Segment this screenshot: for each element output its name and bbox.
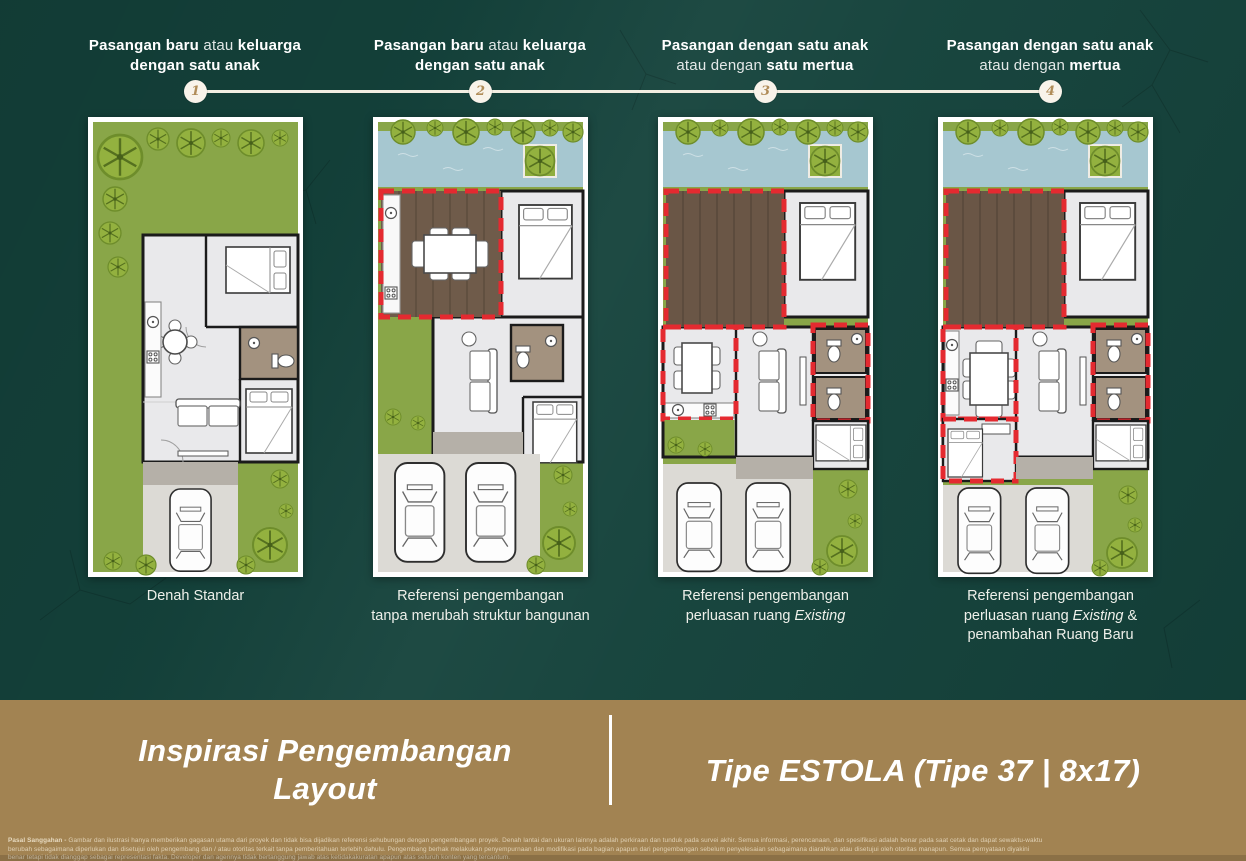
shrub-icon xyxy=(411,416,425,430)
car-icon xyxy=(746,483,790,571)
deck-expansion-area xyxy=(946,191,1064,327)
footer-left-title-line2: Layout xyxy=(40,770,610,808)
bed-icon xyxy=(246,389,292,453)
bed-icon xyxy=(816,425,866,461)
tree-icon xyxy=(279,504,293,518)
tree-icon xyxy=(1119,486,1137,504)
shrub-icon xyxy=(104,552,122,570)
shrub-icon xyxy=(698,442,712,456)
sink-icon xyxy=(947,340,958,351)
step-timeline xyxy=(195,90,1051,93)
tree-icon xyxy=(212,129,230,147)
planter-icon xyxy=(524,145,556,177)
floor-plan-2 xyxy=(373,117,588,577)
tree-icon xyxy=(563,122,583,142)
tree-icon xyxy=(848,514,862,528)
plan-2-caption: Referensi pengembangantanpa merubah stru… xyxy=(348,587,613,626)
stove-icon xyxy=(946,379,958,391)
tv-console xyxy=(1080,357,1086,405)
tree-icon xyxy=(827,120,843,136)
tree-icon xyxy=(98,135,142,179)
shrub-icon xyxy=(385,409,401,425)
tree-icon xyxy=(238,130,264,156)
tree-icon xyxy=(772,119,788,135)
tree-icon xyxy=(992,120,1008,136)
sink-icon xyxy=(546,336,557,347)
step-4-badge: 4 xyxy=(1039,80,1062,103)
floor-plan-1 xyxy=(88,117,303,577)
tree-icon xyxy=(542,120,558,136)
side-table xyxy=(1033,332,1047,346)
tv-console xyxy=(178,451,228,456)
toilet-icon xyxy=(827,340,841,362)
desk xyxy=(982,424,1010,434)
plan-4-caption: Referensi pengembanganperluasan ruang Ex… xyxy=(918,587,1183,646)
toilet-icon xyxy=(1107,340,1121,362)
bed-icon xyxy=(226,247,290,293)
porch xyxy=(736,457,813,479)
car-icon xyxy=(170,489,211,571)
step-2-title: Pasangan baru atau keluargadengan satu a… xyxy=(350,36,610,76)
footer-right-title: Tipe ESTOLA (Tipe 37 | 8x17) xyxy=(650,753,1196,789)
tree-icon xyxy=(956,120,980,144)
tree-icon xyxy=(1052,119,1068,135)
planter-icon xyxy=(809,145,841,177)
tree-icon xyxy=(1076,120,1100,144)
tree-icon xyxy=(1018,119,1044,145)
step-3-number: 3 xyxy=(761,84,770,99)
stove-icon xyxy=(704,404,716,416)
tree-icon xyxy=(103,187,127,211)
step-2-number: 2 xyxy=(476,84,485,99)
tree-icon xyxy=(527,556,545,574)
toilet-icon xyxy=(1107,388,1121,410)
step-4-title: Pasangan dengan satu anakatau dengan mer… xyxy=(920,36,1180,76)
tree-icon xyxy=(827,536,857,566)
tree-icon xyxy=(712,120,728,136)
footer-left-title-line1: Inspirasi Pengembangan xyxy=(40,732,610,770)
bathroom xyxy=(815,377,866,419)
dining-table-icon xyxy=(412,228,488,280)
sink-icon xyxy=(386,208,397,219)
tree-icon xyxy=(796,120,820,144)
car-icon xyxy=(395,463,444,562)
tree-icon xyxy=(1092,560,1108,576)
stove-icon xyxy=(147,351,159,363)
sink-icon xyxy=(249,338,260,349)
tv-console xyxy=(800,357,806,405)
plan-1-caption: Denah Standar xyxy=(63,587,328,607)
car-icon xyxy=(677,483,721,571)
bed-icon xyxy=(1096,425,1146,461)
tree-icon xyxy=(543,527,575,559)
tree-icon xyxy=(391,120,415,144)
tree-icon xyxy=(271,470,289,488)
bed-icon xyxy=(1080,203,1135,280)
step-1-badge: 1 xyxy=(184,80,207,103)
new-room xyxy=(943,419,1016,481)
toilet-icon xyxy=(272,354,294,368)
step-4-number: 4 xyxy=(1046,84,1055,99)
footer-left-title: Inspirasi Pengembangan Layout xyxy=(40,732,610,808)
side-table xyxy=(753,332,767,346)
tree-icon xyxy=(1107,120,1123,136)
tree-icon xyxy=(177,129,205,157)
tree-icon xyxy=(147,128,169,150)
tree-icon xyxy=(427,120,443,136)
tree-icon xyxy=(1128,122,1148,142)
tree-icon xyxy=(511,120,535,144)
tree-icon xyxy=(272,130,288,146)
toilet-icon xyxy=(516,346,530,368)
tree-icon xyxy=(554,466,572,484)
sink-icon xyxy=(148,317,159,328)
car-icon xyxy=(466,463,515,562)
tree-icon xyxy=(738,119,764,145)
sink-icon xyxy=(673,405,684,416)
bottom-edge-shade xyxy=(0,855,1246,861)
bathroom xyxy=(511,325,563,381)
tree-icon xyxy=(812,559,828,575)
tree-icon xyxy=(676,120,700,144)
bed-icon xyxy=(800,203,855,280)
bed-icon xyxy=(533,402,577,463)
step-1-title: Pasangan baru atau keluargadengan satu a… xyxy=(65,36,325,76)
bathroom xyxy=(1095,377,1146,419)
step-3-title: Pasangan dengan satu anakatau dengan sat… xyxy=(635,36,895,76)
toilet-icon xyxy=(827,388,841,410)
porch xyxy=(433,432,523,454)
stove-icon xyxy=(385,287,397,299)
sink-icon xyxy=(1132,334,1143,345)
deck-expansion-area xyxy=(666,191,784,327)
divider xyxy=(609,715,612,805)
tree-icon xyxy=(1107,538,1137,568)
main-section: 1 2 3 4 Pasangan baru atau keluargadenga… xyxy=(0,0,1246,700)
step-1-number: 1 xyxy=(191,84,200,99)
tree-icon xyxy=(453,119,479,145)
deck-dining-area xyxy=(381,191,501,317)
tree-icon xyxy=(487,119,503,135)
floor-plan-4 xyxy=(938,117,1153,577)
bed-icon xyxy=(948,429,983,477)
sink-icon xyxy=(852,334,863,345)
footer-bar: Inspirasi Pengembangan Layout Tipe ESTOL… xyxy=(0,700,1246,861)
planter-icon xyxy=(1089,145,1121,177)
plan-3-caption: Referensi pengembanganperluasan ruang Ex… xyxy=(633,587,898,626)
tree-icon xyxy=(99,222,121,244)
side-table xyxy=(462,332,476,346)
tree-icon xyxy=(237,556,255,574)
tree-icon xyxy=(848,122,868,142)
shrub-icon xyxy=(136,555,156,575)
infographic-canvas: 1 2 3 4 Pasangan baru atau keluargadenga… xyxy=(0,0,1246,861)
tree-icon xyxy=(839,480,857,498)
tree-icon xyxy=(563,502,577,516)
car-icon xyxy=(1026,488,1069,573)
tree-icon xyxy=(108,257,128,277)
step-2-badge: 2 xyxy=(469,80,492,103)
porch xyxy=(143,462,238,485)
step-3-badge: 3 xyxy=(754,80,777,103)
tree-icon xyxy=(1128,518,1142,532)
shrub-icon xyxy=(668,437,684,453)
porch xyxy=(1016,457,1093,479)
bed-icon xyxy=(519,205,572,279)
tree-icon xyxy=(253,528,287,562)
car-icon xyxy=(958,488,1001,573)
floor-plan-3 xyxy=(658,117,873,577)
dining-table-icon xyxy=(963,341,1015,417)
